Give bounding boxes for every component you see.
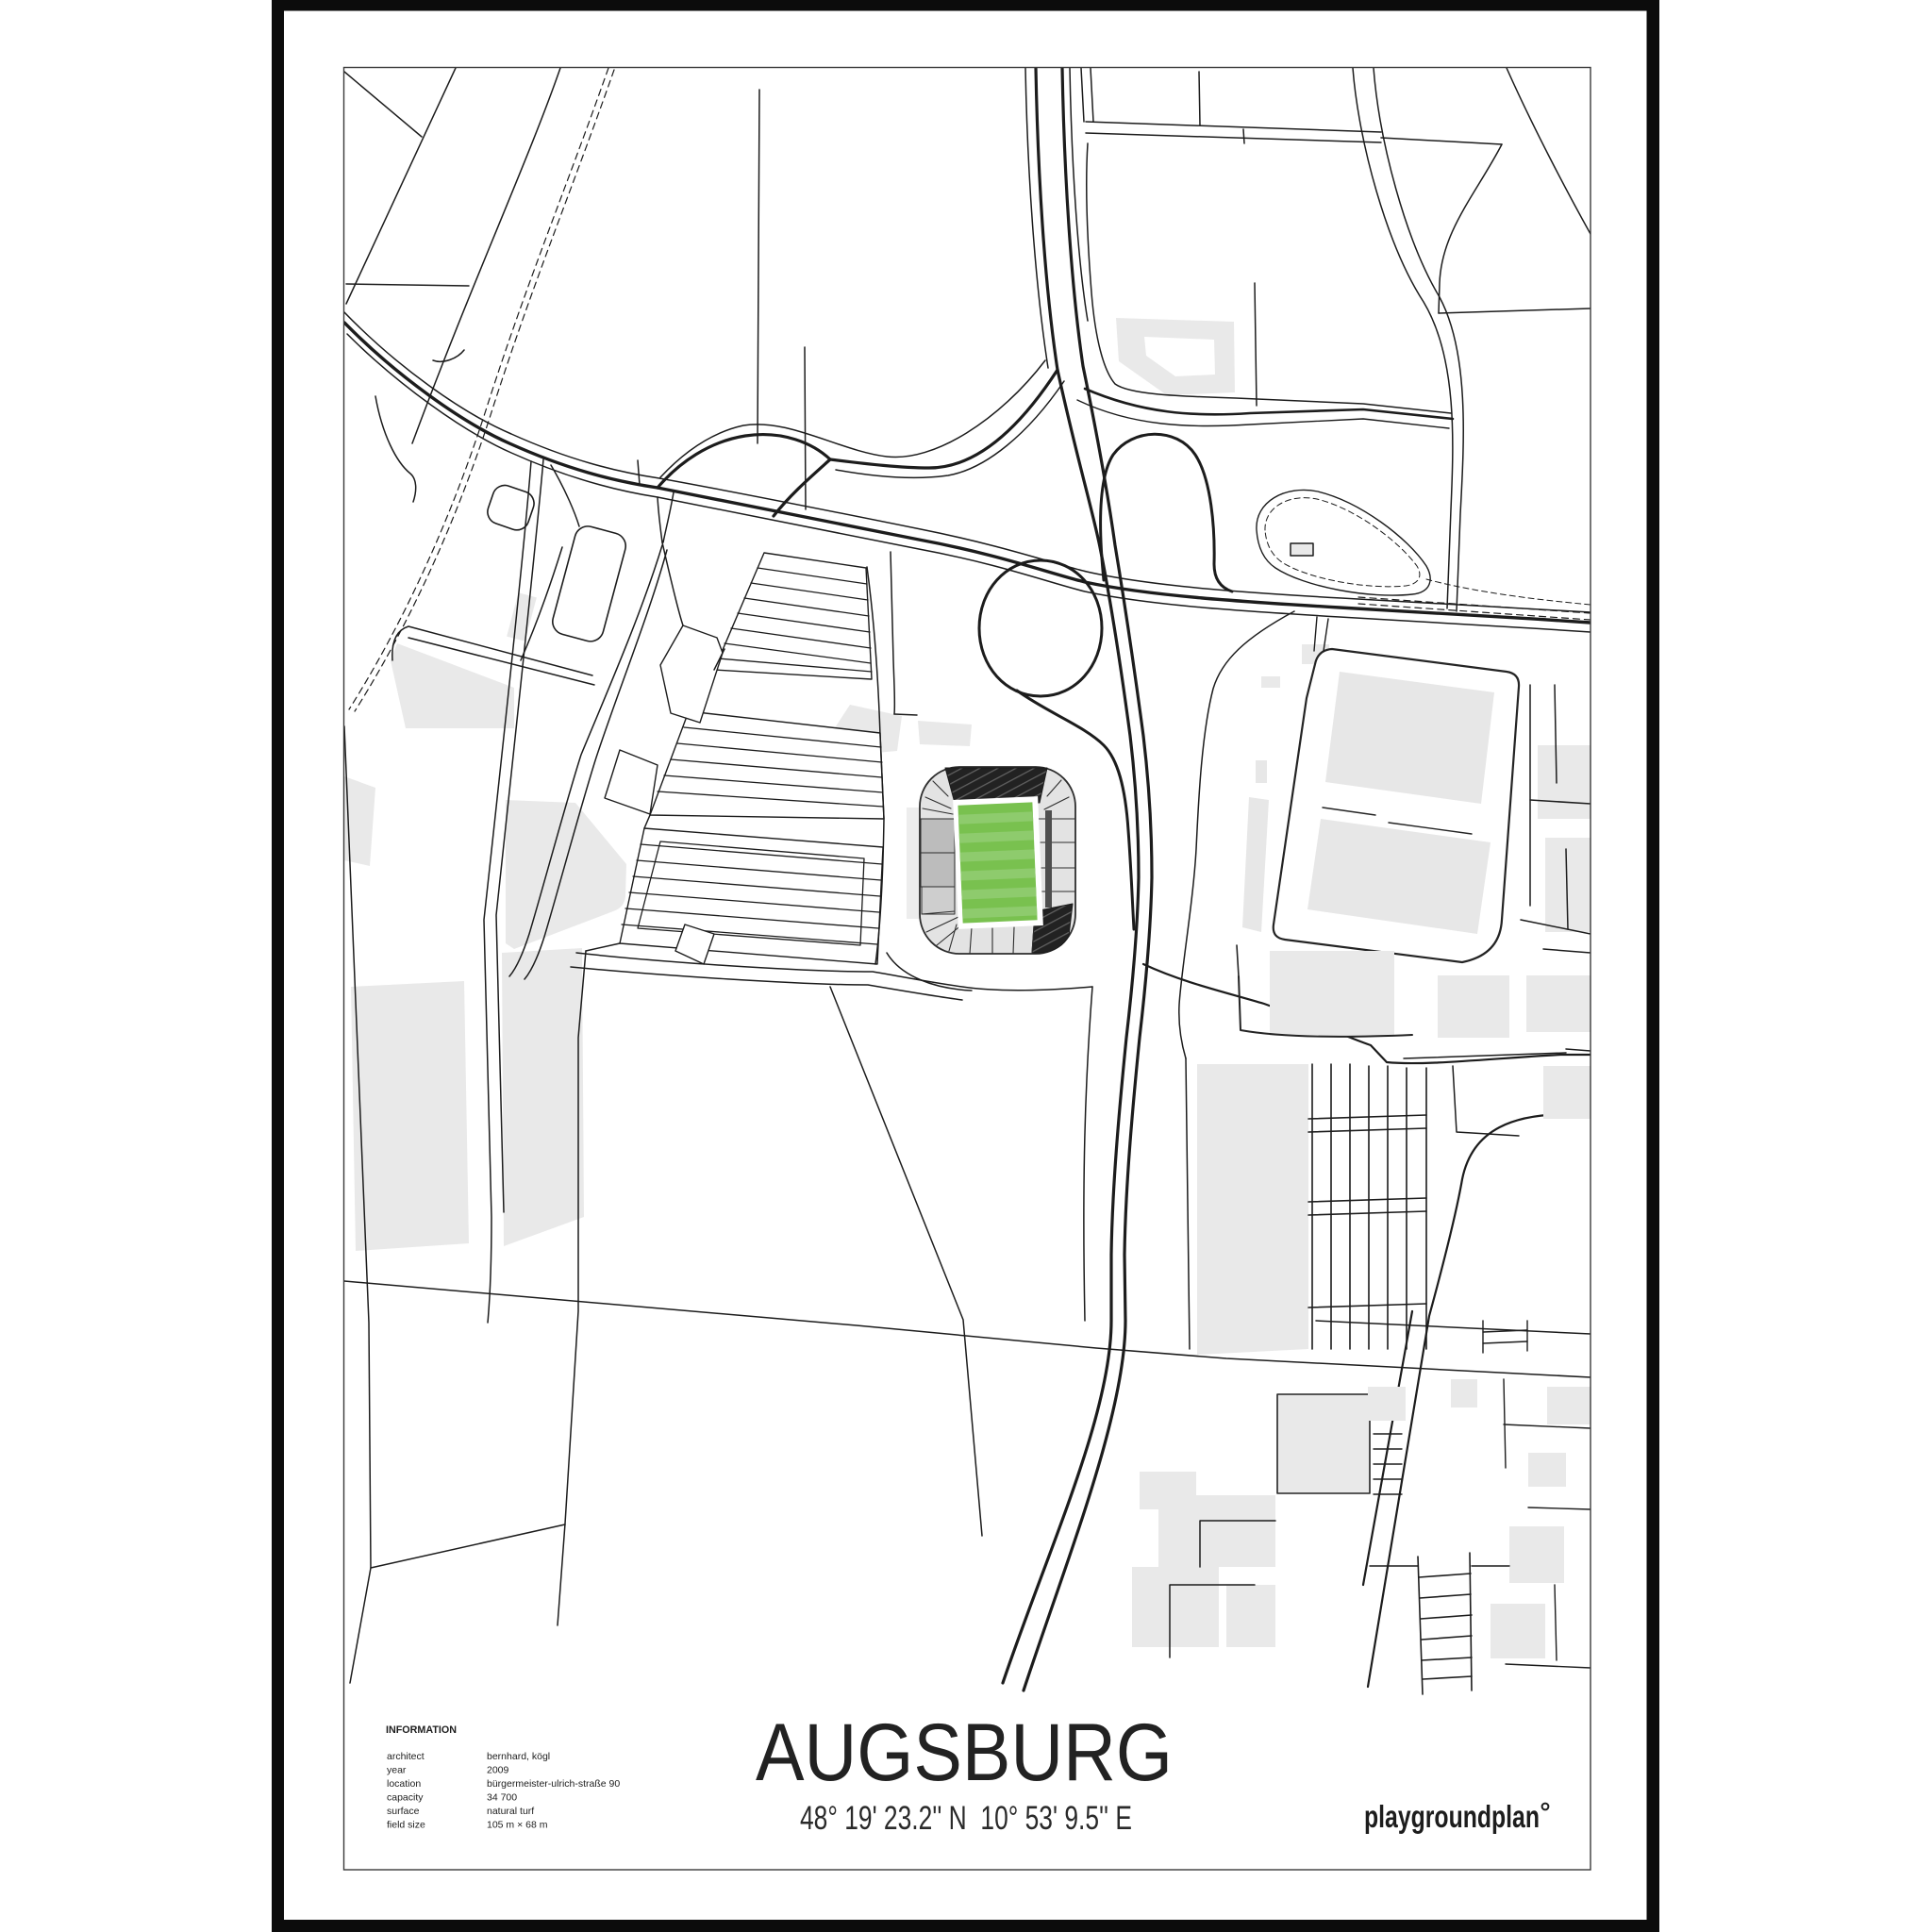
- svg-text:2009: 2009: [487, 1765, 509, 1776]
- svg-text:105 m × 68 m: 105 m × 68 m: [487, 1820, 548, 1831]
- svg-text:bürgermeister-ulrich-straße 90: bürgermeister-ulrich-straße 90: [487, 1778, 620, 1790]
- svg-text:surface: surface: [387, 1806, 420, 1817]
- svg-text:location: location: [387, 1778, 421, 1790]
- svg-text:34 700: 34 700: [487, 1792, 517, 1804]
- svg-text:capacity: capacity: [387, 1792, 424, 1804]
- svg-text:bernhard, kögl: bernhard, kögl: [487, 1751, 550, 1762]
- svg-text:playgroundplan: playgroundplan: [1364, 1799, 1540, 1834]
- svg-text:year: year: [387, 1765, 407, 1776]
- svg-text:48° 19' 23.2'' N 10° 53' 9.5': 48° 19' 23.2'' N 10° 53' 9.5'' E: [800, 1800, 1132, 1837]
- svg-text:field size: field size: [387, 1820, 425, 1831]
- svg-text:AUGSBURG: AUGSBURG: [756, 1707, 1173, 1798]
- svg-text:INFORMATION: INFORMATION: [386, 1724, 457, 1736]
- svg-text:natural turf: natural turf: [487, 1806, 534, 1817]
- svg-text:architect: architect: [387, 1751, 425, 1762]
